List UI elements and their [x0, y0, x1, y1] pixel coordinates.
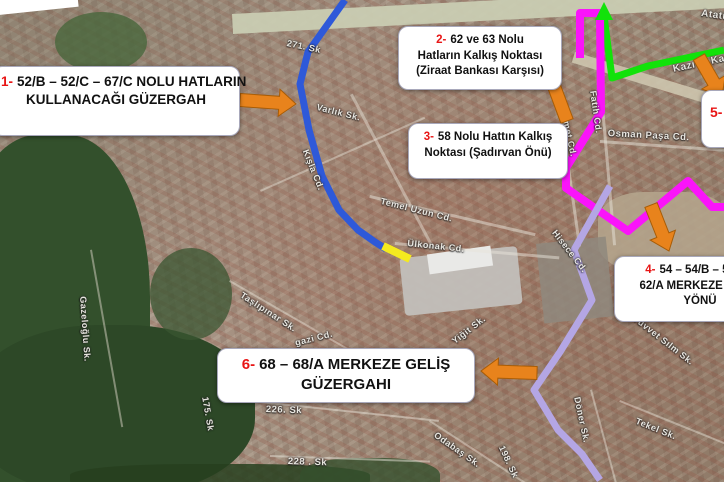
street-label: Fe: [705, 126, 718, 140]
callout-text: 62 ve 63 Nolu: [450, 34, 524, 46]
street-stroke: [350, 94, 432, 246]
street-label: Tekel Sk.: [634, 416, 677, 441]
street-label: Taşlıpınar Sk.: [239, 290, 299, 334]
street-label: Varlık Sk.: [316, 102, 362, 123]
callout-line: Hatların Kalkış Noktası: [407, 49, 553, 65]
callout-text: (Ziraat Bankası Karşısı): [416, 65, 544, 77]
callout-text: 52/B – 52/C – 67/C NOLU HATLARIN: [17, 74, 246, 89]
cleared-land: [598, 192, 724, 272]
image-corner-blank: [0, 0, 79, 15]
street-label: Kazı: [672, 59, 696, 74]
bus-route-map-image: Atatürk Blv.KazıKa271. SkVarlık Sk.Kışla…: [0, 0, 724, 482]
callout-line: GÜZERGAHI: [226, 375, 466, 395]
street-label: 271. Sk: [286, 38, 322, 55]
route-green: [604, 10, 724, 78]
street-stroke: [229, 280, 377, 367]
callout-3: 3-58 Nolu Hattın KalkışNoktası (Şadırvan…: [408, 123, 568, 179]
callout-text: Noktası (Şadırvan Önü): [424, 147, 551, 159]
callout-line: 2-62 ve 63 Nolu: [407, 33, 553, 49]
callout-line: YÖNÜ: [623, 294, 724, 310]
callout-text: 58 Nolu Hattın Kalkış: [438, 131, 552, 143]
forest-area: [150, 248, 232, 340]
route-blue-52b-52c-67c: [300, 0, 386, 249]
callout-text: YÖNÜ: [683, 295, 716, 307]
street-label: Temel Uzun Cd.: [380, 196, 454, 224]
callout-line: 6-68 – 68/A MERKEZE GELİŞ: [226, 355, 466, 375]
street-stroke: [619, 400, 724, 447]
callout-line: 1-52/B – 52/C – 67/C NOLU HATLARIN: [1, 73, 231, 91]
callout-1: 1-52/B – 52/C – 67/C NOLU HATLARINKULLAN…: [0, 66, 240, 136]
street-label: 226. Sk: [266, 404, 303, 416]
street-stroke: [429, 420, 581, 482]
callout-line: KULLANACAĞI GÜZERGAH: [1, 91, 231, 109]
street-label: Yiğit Sk.: [450, 314, 487, 346]
callout-line: (Ziraat Bankası Karşısı): [407, 64, 553, 80]
callout-2: 2-62 ve 63 NoluHatların Kalkış Noktası(Z…: [398, 26, 562, 90]
street-stroke: [260, 117, 425, 192]
street-label: gazi Cd.: [294, 329, 334, 348]
callout-text: 62/A MERKEZE GELİŞ: [640, 280, 724, 292]
street-label: 198. Sk: [497, 444, 521, 480]
street-label: Osman Paşa Cd.: [607, 128, 689, 143]
street-label: Mürüvvet Sılm Sk.: [622, 306, 696, 367]
arrow-route6-direction-icon: [481, 358, 537, 385]
callout-text: Hatların Kalkış Noktası: [418, 50, 543, 62]
callout-number: 1-: [1, 74, 13, 89]
callout-text: KULLANACAĞI GÜZERGAH: [26, 92, 206, 107]
street-stroke: [232, 0, 724, 34]
street-stroke: [600, 140, 724, 152]
street-label: Kışla Cd.: [301, 148, 326, 192]
street-label: Hükümet Cd.: [556, 96, 578, 158]
arrow-route5-direction-icon: [693, 54, 724, 97]
street-stroke: [590, 389, 618, 482]
callout-number: 2-: [436, 34, 446, 46]
street-stroke: [572, 52, 724, 114]
street-stroke: [560, 118, 581, 247]
callout-line: Noktası (Şadırvan Önü): [417, 146, 559, 162]
callout-number: 3-: [424, 131, 434, 143]
street-label: Ka: [710, 53, 724, 67]
forest-area: [0, 325, 255, 482]
arrow-stop2-location-icon: [532, 46, 573, 123]
route-green-arrowhead: [595, 2, 613, 20]
callout-6: 6-68 – 68/A MERKEZE GELİŞGÜZERGAHI: [217, 348, 475, 403]
callout-text: GÜZERGAHI: [301, 376, 391, 393]
callout-5: 5-: [701, 90, 724, 148]
street-stroke: [250, 400, 439, 422]
street-label: Döner Sk.: [572, 396, 591, 444]
callout-text: 68 – 68/A MERKEZE GELİŞ: [259, 356, 450, 373]
callout-line: 62/A MERKEZE GELİŞ: [623, 279, 724, 295]
street-stroke: [369, 195, 535, 236]
street-label: Odabaş Sk.: [432, 430, 482, 469]
large-building-roof: [536, 237, 614, 324]
street-label: Fatih Cd.: [588, 90, 604, 134]
callout-number: 5-: [710, 104, 722, 120]
callout-line: 3-58 Nolu Hattın Kalkış: [417, 130, 559, 146]
forest-area: [300, 458, 440, 482]
forest-area: [55, 12, 147, 72]
street-label: Atatürk Blv.: [700, 8, 724, 27]
arrow-route1-direction-icon: [240, 89, 297, 116]
